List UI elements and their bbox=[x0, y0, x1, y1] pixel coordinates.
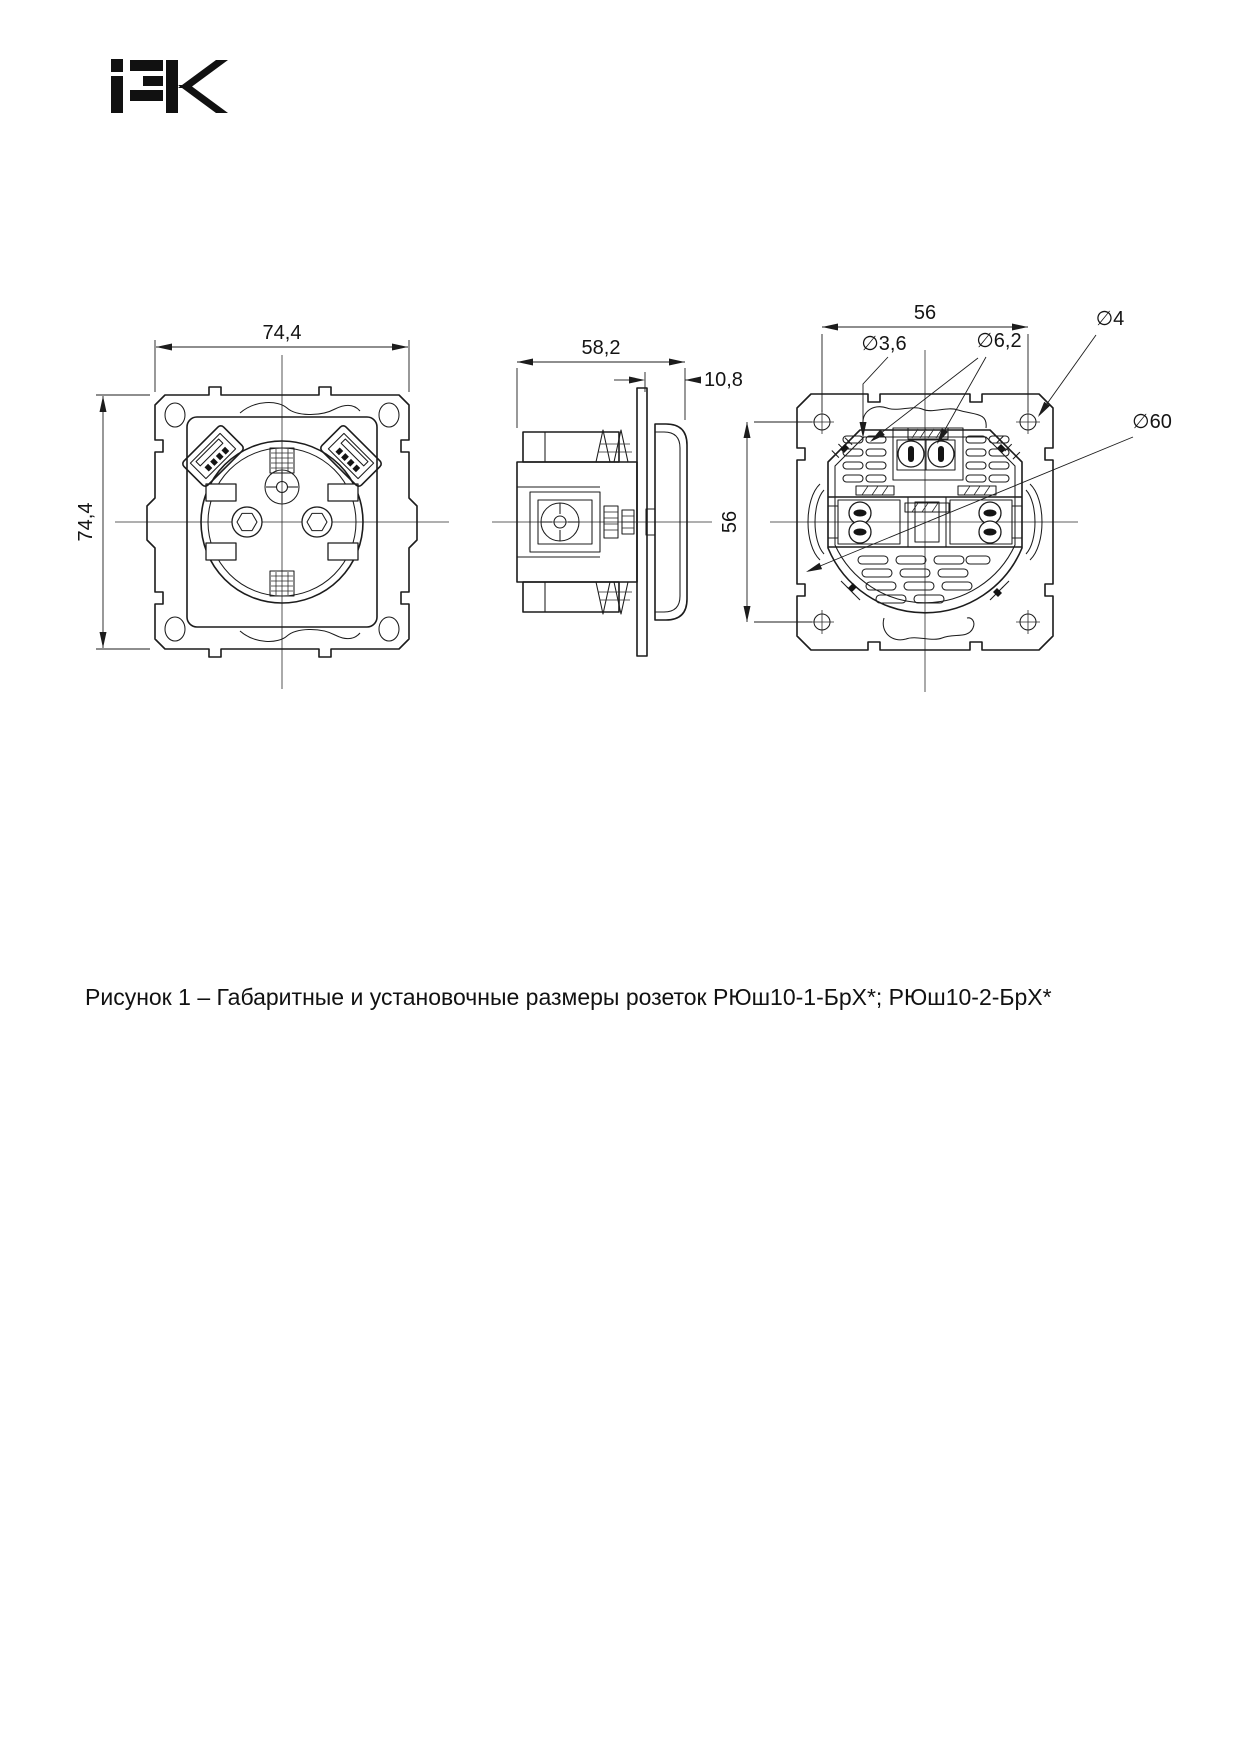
back-view: 56 56 ∅3,6 ∅6,2 ∅4 bbox=[719, 302, 1172, 692]
front-height-label: 74,4 bbox=[75, 503, 97, 542]
side-claw-bottom bbox=[596, 582, 632, 614]
side-cover-label: 10,8 bbox=[704, 369, 743, 391]
logo-i-dot bbox=[111, 59, 123, 72]
logo-e-bottom bbox=[130, 90, 163, 101]
back-hatched-bars bbox=[856, 486, 996, 512]
claw-hole-callout: ∅3,6 bbox=[860, 333, 907, 438]
logo-k-stem bbox=[166, 60, 178, 113]
back-bottom-vents bbox=[858, 556, 990, 603]
side-depth-dimension: 58,2 bbox=[517, 337, 685, 428]
side-cover-dimension: 10,8 bbox=[614, 369, 743, 392]
logo-k-lower-arm bbox=[178, 85, 228, 113]
front-width-label: 74,4 bbox=[263, 322, 302, 344]
body-dia-callout: ∅60 bbox=[806, 411, 1172, 572]
technical-drawing: 74,4 74,4 bbox=[0, 0, 1244, 1748]
front-corner-hole bbox=[165, 617, 185, 641]
front-corner-hole bbox=[379, 617, 399, 641]
manual-page: 74,4 74,4 bbox=[0, 0, 1244, 1748]
front-corner-hole bbox=[165, 403, 185, 427]
front-view: 74,4 74,4 bbox=[75, 322, 449, 689]
side-claw-top bbox=[596, 430, 632, 462]
body-dia-label: ∅60 bbox=[1132, 411, 1172, 433]
claw-hole-label: ∅3,6 bbox=[861, 333, 906, 355]
logo-k-upper-arm bbox=[178, 60, 228, 88]
back-vspacing-label: 56 bbox=[719, 511, 741, 533]
lug-top bbox=[863, 407, 986, 428]
back-top-terminal bbox=[893, 428, 963, 480]
side-depth-label: 58,2 bbox=[582, 337, 621, 359]
back-hspacing-label: 56 bbox=[914, 302, 936, 324]
iek-logo bbox=[111, 59, 228, 113]
mount-hole-callout: ∅4 bbox=[1038, 308, 1124, 417]
mount-hole-label: ∅4 bbox=[1096, 308, 1125, 330]
side-view: 58,2 10,8 bbox=[492, 337, 743, 656]
logo-i-stem bbox=[111, 76, 123, 113]
figure-caption: Рисунок 1 – Габаритные и установочные ра… bbox=[85, 984, 1185, 1011]
logo-e-mid bbox=[143, 76, 163, 86]
lug-bottom bbox=[883, 618, 974, 640]
front-corner-hole bbox=[379, 403, 399, 427]
terminal-hole-label: ∅6,2 bbox=[976, 330, 1021, 352]
logo-e-top bbox=[130, 60, 163, 71]
